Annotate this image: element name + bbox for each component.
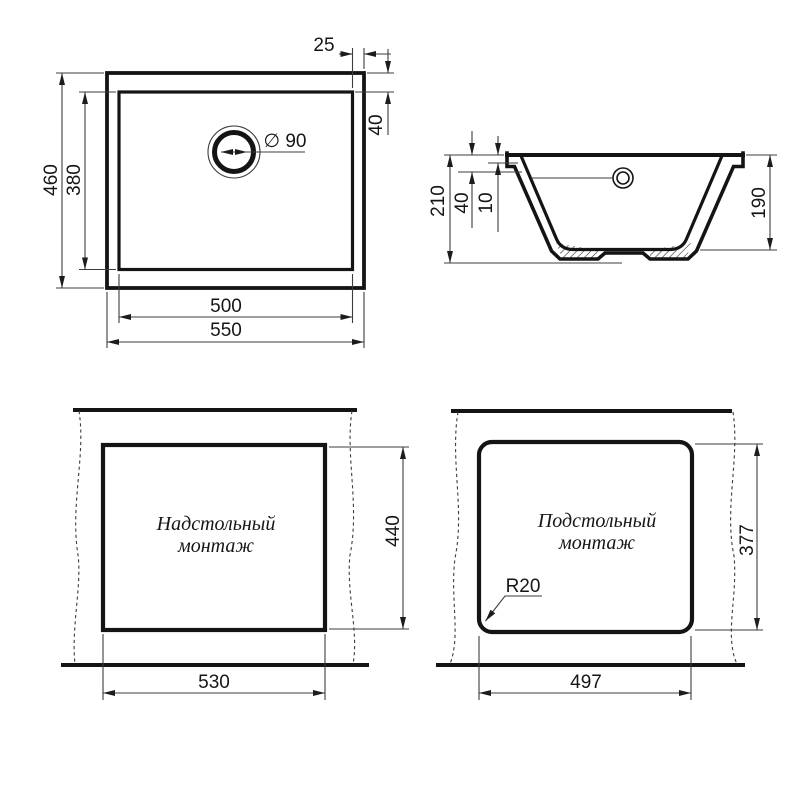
plan-view: ∅ 90 550 500 460 380 (41, 35, 394, 348)
dim-edge-offset: 25 (313, 35, 391, 88)
dim-top-offset: 40 (355, 49, 394, 136)
dim-label-210: 210 (428, 185, 449, 217)
dim-offset-40: 40 (452, 131, 473, 228)
dim-cutout-height: 377 (695, 444, 763, 630)
radius-callout: R20 (486, 576, 543, 621)
dim-inner-width: 500 (119, 274, 353, 323)
radius-label-r20: R20 (506, 576, 541, 597)
mount-title-line1: Подстольный (537, 510, 656, 532)
dim-label-440: 440 (383, 515, 404, 547)
dim-cutout-width: 497 (479, 636, 691, 700)
dim-label-500: 500 (210, 296, 242, 317)
break-line-left (74, 411, 81, 664)
topmount-view: Надстольный монтаж 530 440 (63, 410, 409, 700)
section-view: 210 40 10 190 (428, 131, 777, 263)
mount-title-line2: монтаж (558, 532, 635, 554)
dim-label-40: 40 (366, 114, 387, 135)
drain-outer-circle (613, 168, 633, 188)
sink-technical-drawing: ∅ 90 550 500 460 380 (0, 0, 800, 800)
dim-label-25: 25 (313, 35, 334, 56)
dim-label-497: 497 (570, 672, 602, 693)
break-line-right (349, 411, 354, 664)
undermount-view: Подстольный монтаж R20 497 377 (438, 411, 763, 700)
mount-title-line2: монтаж (177, 535, 254, 557)
dim-label-40: 40 (452, 192, 473, 213)
dim-label-460: 460 (41, 164, 62, 196)
dim-label-550: 550 (210, 320, 242, 341)
drawing-canvas: ∅ 90 550 500 460 380 (0, 0, 800, 800)
dim-label-190: 190 (749, 187, 770, 219)
bowl-outline (119, 92, 353, 270)
dim-label-10: 10 (476, 192, 497, 213)
dim-label-530: 530 (198, 672, 230, 693)
leader-line (486, 596, 543, 621)
mount-title-line1: Надстольный (156, 513, 276, 535)
dim-label-377: 377 (737, 524, 758, 556)
dim-cutout-height: 440 (329, 447, 409, 629)
dim-offset-10: 10 (476, 136, 498, 232)
dim-bowl-depth: 190 (700, 155, 777, 250)
sink-outer-outline (107, 73, 364, 288)
break-line-left (450, 412, 459, 664)
dim-label-380: 380 (64, 164, 85, 196)
drain-diameter-label: ∅ 90 (264, 131, 307, 152)
